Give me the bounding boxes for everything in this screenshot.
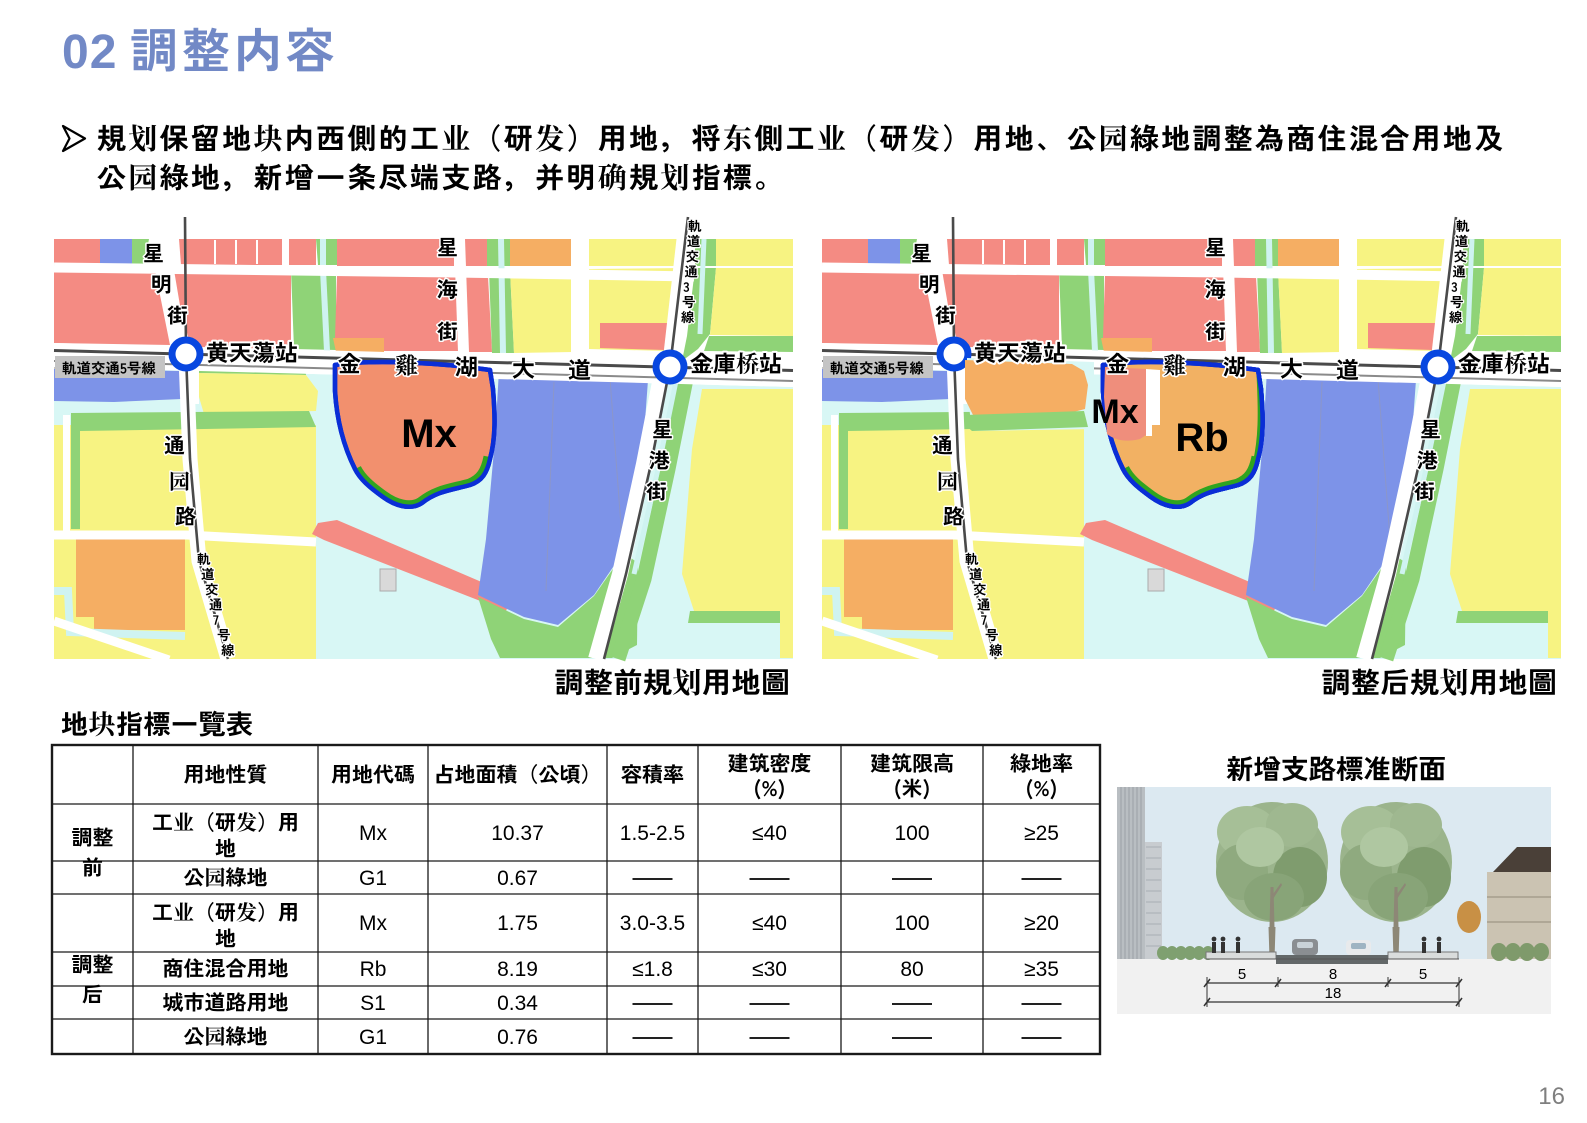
svg-text:≥20: ≥20: [1024, 912, 1059, 935]
svg-text:S1: S1: [360, 992, 386, 1015]
svg-text:80: 80: [900, 958, 923, 981]
svg-text:1.75: 1.75: [497, 912, 538, 935]
svg-text:8.19: 8.19: [497, 958, 538, 981]
svg-text:G1: G1: [359, 867, 387, 890]
svg-text:16: 16: [1538, 1083, 1565, 1110]
svg-text:Mx: Mx: [359, 822, 387, 845]
svg-text:≥25: ≥25: [1024, 822, 1059, 845]
svg-text:Rb: Rb: [360, 958, 387, 981]
svg-text:Rb: Rb: [1175, 416, 1228, 460]
svg-text:Mx: Mx: [401, 412, 457, 456]
svg-text:100: 100: [894, 822, 929, 845]
svg-text:G1: G1: [359, 1026, 387, 1049]
svg-text:0.34: 0.34: [497, 992, 538, 1015]
svg-text:≤40: ≤40: [752, 822, 787, 845]
svg-text:5: 5: [1238, 966, 1246, 983]
svg-text:≤30: ≤30: [752, 958, 787, 981]
svg-text:02: 02: [62, 26, 117, 79]
svg-text:0.67: 0.67: [497, 867, 538, 890]
svg-text:5: 5: [1419, 966, 1427, 983]
svg-text:≤40: ≤40: [752, 912, 787, 935]
svg-text:Mx: Mx: [359, 912, 387, 935]
svg-text:1.5-2.5: 1.5-2.5: [620, 822, 685, 845]
svg-text:10.37: 10.37: [491, 822, 544, 845]
svg-text:Mx: Mx: [1091, 393, 1138, 431]
svg-text:18: 18: [1325, 985, 1342, 1002]
svg-text:≥35: ≥35: [1024, 958, 1059, 981]
svg-text:≤1.8: ≤1.8: [632, 958, 673, 981]
svg-text:8: 8: [1329, 966, 1337, 983]
svg-text:3.0-3.5: 3.0-3.5: [620, 912, 685, 935]
svg-text:100: 100: [894, 912, 929, 935]
svg-text:0.76: 0.76: [497, 1026, 538, 1049]
